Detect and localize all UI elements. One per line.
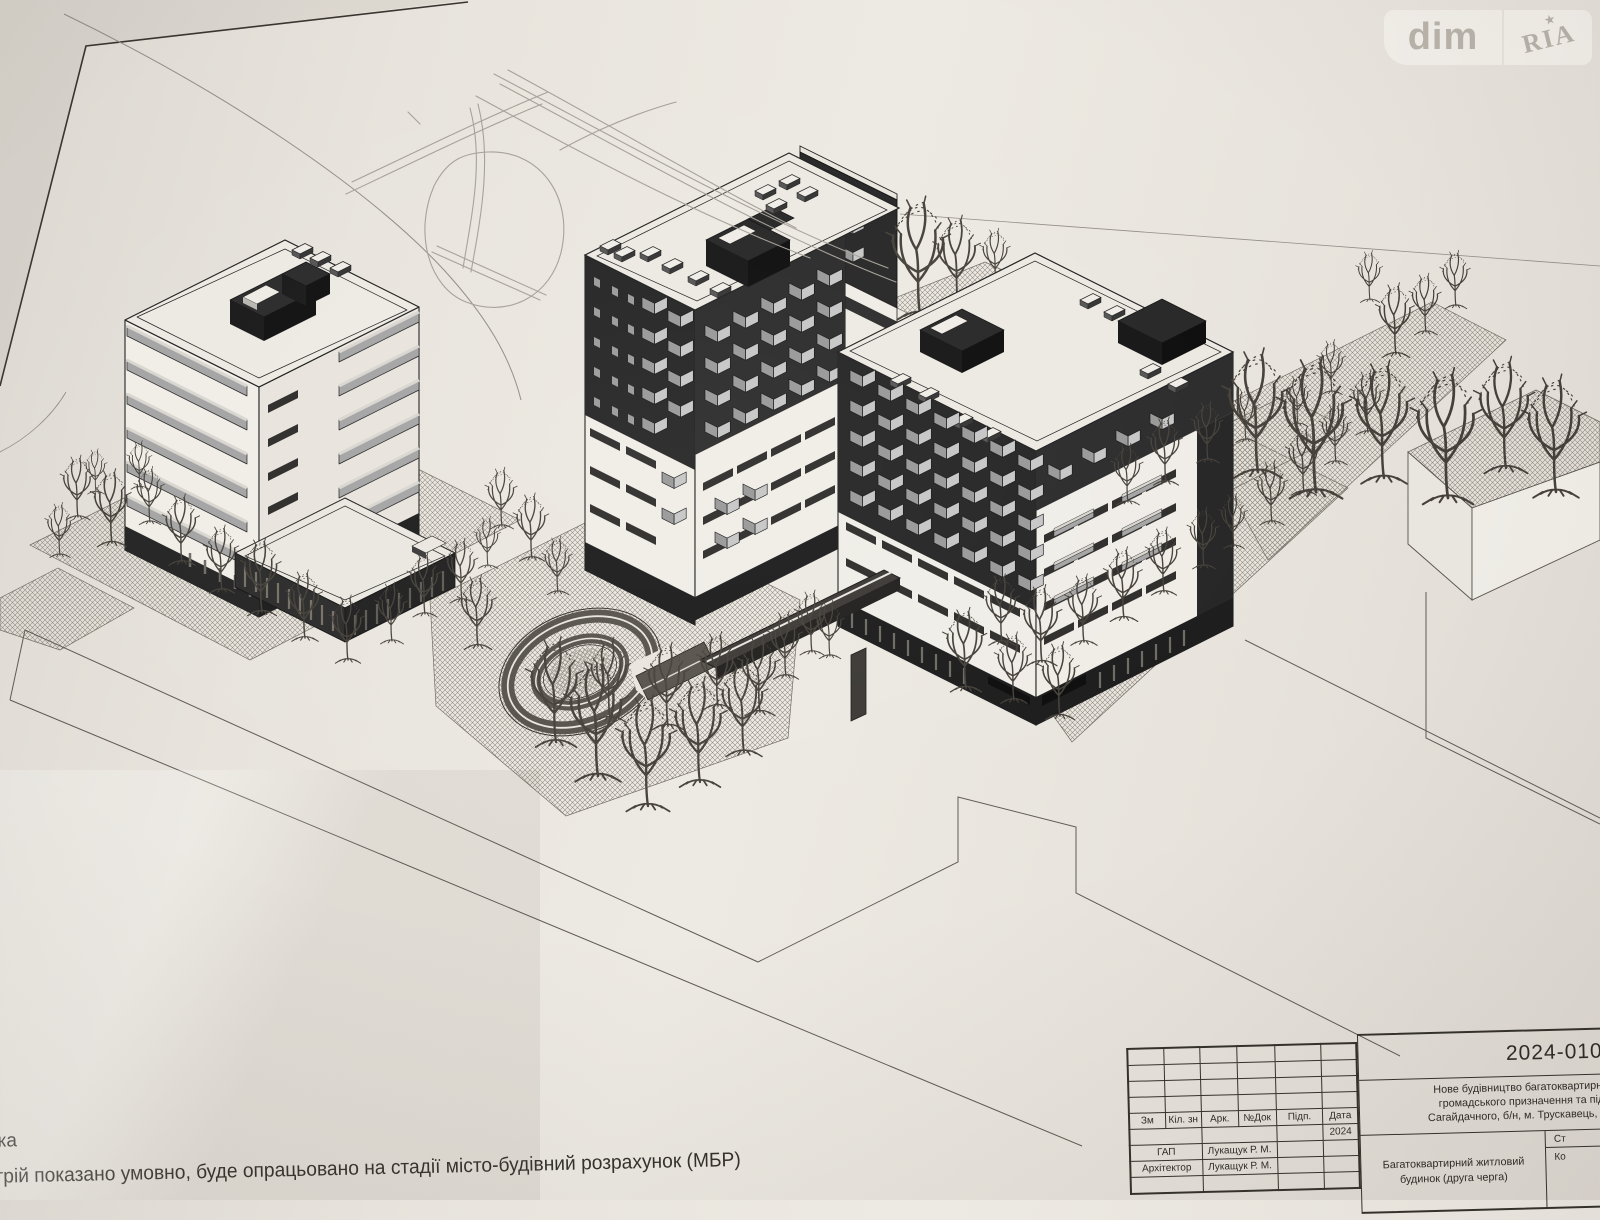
col-ark: Арк. (1201, 1111, 1238, 1128)
axonometric-site-drawing (0, 0, 1600, 1200)
main-building-wing-b (838, 253, 1233, 725)
project-description: Нове будівництво багатоквартирного житло… (1359, 1070, 1600, 1136)
dim-logo: dim (1384, 10, 1502, 65)
col-zm: Зм (1129, 1113, 1165, 1130)
count-cell: Ко (1546, 1142, 1600, 1207)
ria-logo: ★ RIA (1504, 10, 1592, 65)
photographed-architectural-sheet: { "watermark": { "left": "dim", "right":… (0, 0, 1600, 1200)
col-ndok: №Док (1238, 1110, 1276, 1127)
title-block-main: 2024-010-АР Нове будівництво багатокварт… (1357, 1023, 1600, 1214)
name-gap: Лукащук Р. М. (1202, 1142, 1277, 1160)
stamp-date: 2024 (1323, 1123, 1359, 1140)
title-block-revision-table: Зм Кіл. зн Арк. №Док Підп. Дата 2024 ГАП… (1126, 1042, 1361, 1195)
role-gap: ГАП (1130, 1144, 1203, 1162)
dim-ria-watermark: dim ★ RIA (1384, 10, 1592, 65)
document-number: 2024-010-АР (1358, 1025, 1600, 1081)
col-pidp: Підп. (1276, 1108, 1323, 1125)
name-architect: Лукащук Р. М. (1202, 1158, 1277, 1176)
role-architect: Архітектор (1130, 1160, 1203, 1178)
col-kil: Кіл. зн (1165, 1112, 1202, 1129)
col-data: Дата (1323, 1107, 1359, 1124)
title-block: Зм Кіл. зн Арк. №Док Підп. Дата 2024 ГАП… (1126, 1023, 1600, 1220)
